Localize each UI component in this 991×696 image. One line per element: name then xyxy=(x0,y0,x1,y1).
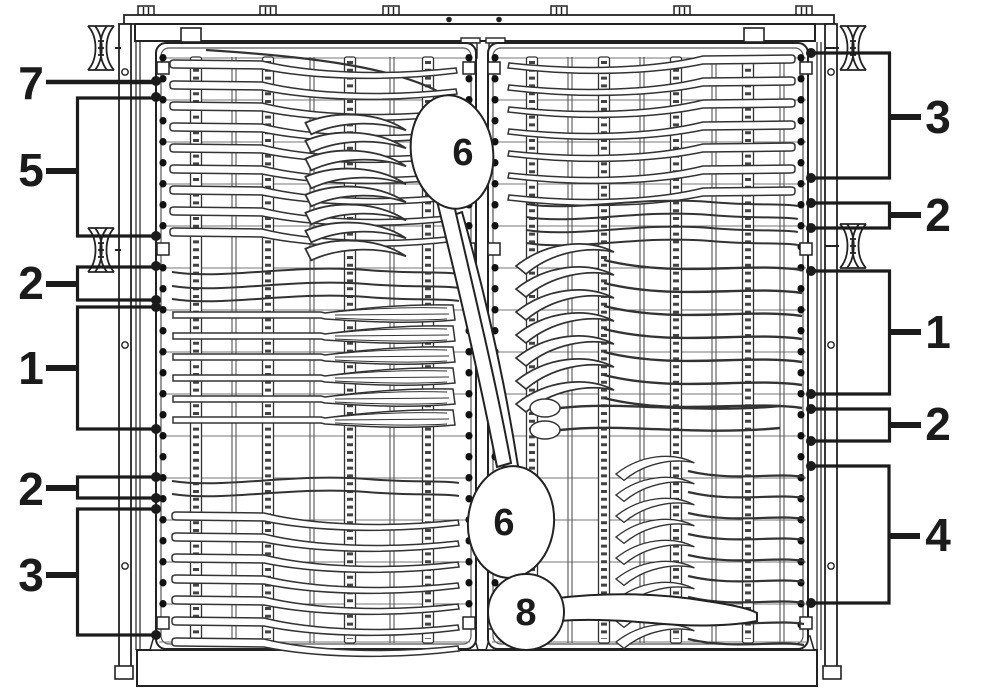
screw-icon xyxy=(447,17,452,22)
clip-box xyxy=(800,243,812,255)
screw-hole-icon xyxy=(828,563,834,569)
callout-label: 5 xyxy=(18,144,44,196)
callout-bracket xyxy=(78,477,154,498)
callout-label: 4 xyxy=(925,509,951,561)
callout-dot xyxy=(806,598,816,608)
hanger-bracket xyxy=(181,28,201,42)
callout-bracket xyxy=(78,307,154,429)
clip-box xyxy=(800,62,812,74)
callout-dot xyxy=(806,173,816,183)
callout-dot xyxy=(151,424,161,434)
callout-dot xyxy=(151,504,161,514)
callout-label: 3 xyxy=(18,549,44,601)
cutlery-tray-diagram: 6 6 8 7 5 2 1 xyxy=(0,0,991,696)
clip-rail xyxy=(671,57,682,643)
top-rail xyxy=(124,15,834,24)
callout-label: 3 xyxy=(925,91,951,143)
clip-box xyxy=(463,62,475,74)
clip-box xyxy=(157,617,169,629)
rail-foot xyxy=(115,666,133,679)
clip-box xyxy=(157,62,169,74)
callout-bracket xyxy=(811,466,889,603)
callout-dot xyxy=(806,198,816,208)
clip-box xyxy=(157,243,169,255)
callout-dot xyxy=(151,92,161,102)
screw-hole-icon xyxy=(122,563,128,569)
callout-label: 2 xyxy=(925,189,951,241)
callout-bracket xyxy=(811,409,890,441)
clip-rail xyxy=(599,57,610,643)
callout-dot xyxy=(151,261,161,271)
callout-label-6-top: 6 xyxy=(452,132,473,174)
callout-dot xyxy=(151,76,161,86)
callout-bracket xyxy=(811,271,890,394)
roller-wheel-icon xyxy=(839,223,867,269)
screw-hole-icon xyxy=(122,69,128,75)
callout-dot xyxy=(806,404,816,414)
screw-icon xyxy=(497,17,502,22)
callout-dot xyxy=(151,231,161,241)
screw-hole-icon xyxy=(828,342,834,348)
callout-label: 7 xyxy=(18,57,44,109)
callout-bracket xyxy=(78,509,154,635)
callout-label-6-bottom: 6 xyxy=(493,502,514,544)
callout-dot xyxy=(806,48,816,58)
callout-label: 1 xyxy=(18,342,44,394)
callout-dot xyxy=(151,302,161,312)
callout-dot xyxy=(151,630,161,640)
callout-dot xyxy=(151,493,161,503)
roller-wheel-icon xyxy=(839,25,867,71)
callout-bracket xyxy=(811,53,890,178)
callout-dot xyxy=(806,461,816,471)
callout-label: 1 xyxy=(925,306,951,358)
callout-dot xyxy=(806,436,816,446)
callout-dot xyxy=(806,389,816,399)
clip-box xyxy=(488,243,500,255)
clip-rail xyxy=(345,57,356,643)
clip-box xyxy=(463,617,475,629)
callout-label-8: 8 xyxy=(515,592,536,634)
callout-label: 2 xyxy=(18,463,44,515)
callout-label: 2 xyxy=(18,257,44,309)
rail-foot xyxy=(823,666,841,679)
base-bar xyxy=(137,650,817,686)
screw-hole-icon xyxy=(828,69,834,75)
hanger-bracket xyxy=(744,28,764,42)
screw-hole-icon xyxy=(122,342,128,348)
callout-dot xyxy=(806,223,816,233)
roller-wheel-icon xyxy=(87,25,115,71)
callout-label: 2 xyxy=(925,398,951,450)
clip-box xyxy=(488,62,500,74)
callout-bracket xyxy=(78,98,154,236)
callout-dot xyxy=(806,266,816,276)
callout-dot xyxy=(151,472,161,482)
